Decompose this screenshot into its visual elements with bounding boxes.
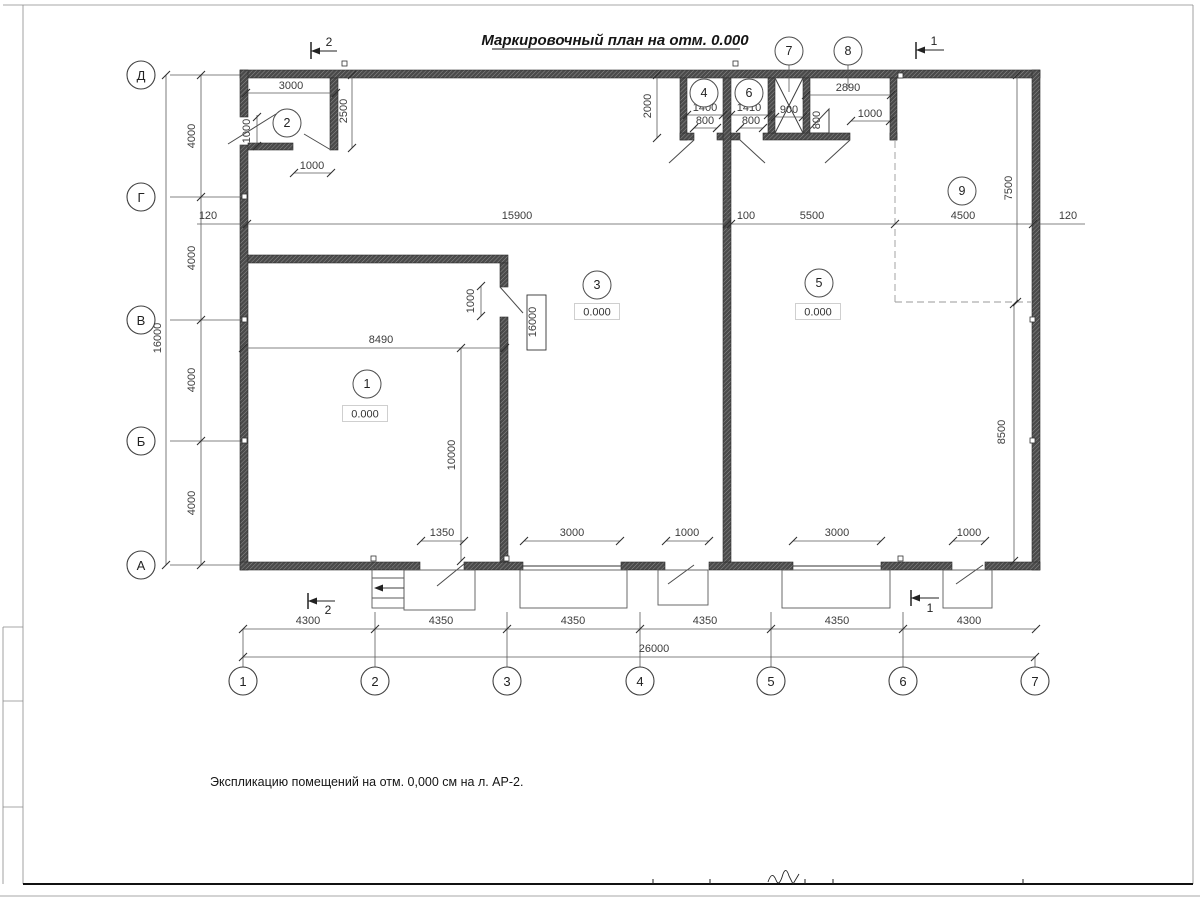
dim-room2-door-left: 1000 xyxy=(241,119,253,143)
dim-room2-door-bottom: 1000 xyxy=(300,160,324,172)
dim-mid-left-offset: 120 xyxy=(199,210,217,222)
axis-1: 1 xyxy=(239,674,246,689)
axis-7: 7 xyxy=(1031,674,1038,689)
axis-A: А xyxy=(137,558,146,573)
room-5-number: 5 xyxy=(816,276,823,290)
dim-mid-gap: 100 xyxy=(737,210,755,222)
room-7-number: 7 xyxy=(786,44,793,58)
section-mark-top-left: 2 xyxy=(311,35,337,59)
dim-toprooms-depth: 2000 xyxy=(642,94,654,118)
room-5-level: 0.000 xyxy=(804,307,832,319)
page-title: Маркировочный план на отм. 0.000 xyxy=(481,32,749,49)
dim-room8-door: 1000 xyxy=(858,108,882,120)
section-top-left-label: 2 xyxy=(326,35,333,49)
dim-right-depth: 8500 xyxy=(996,420,1008,444)
porches xyxy=(404,570,992,610)
axis-6: 6 xyxy=(899,674,906,689)
dim-total-height: 16000 xyxy=(152,323,164,354)
dim-open-3000b: 3000 xyxy=(825,527,849,539)
walls-layer xyxy=(240,70,1040,570)
dim-chain-3: 4350 xyxy=(561,615,585,627)
section-bottom-left-label: 2 xyxy=(325,603,332,617)
dim-mid-span-left: 15900 xyxy=(502,210,533,222)
signature-scribble xyxy=(768,870,799,884)
stair-symbol xyxy=(372,568,404,608)
dim-mid-right-offset: 120 xyxy=(1059,210,1077,222)
axis-G: Г xyxy=(137,190,144,205)
dim-left-chain-3: 4000 xyxy=(186,368,198,392)
room-1-level: 0.000 xyxy=(351,409,379,421)
room-9-number: 9 xyxy=(959,184,966,198)
room-1-number: 1 xyxy=(364,377,371,391)
dimension-ticks xyxy=(162,71,1040,661)
section-top-right-label: 1 xyxy=(931,34,938,48)
room-2-number: 2 xyxy=(284,116,291,130)
panel-mark: 16000 xyxy=(527,295,546,350)
dim-chain-4: 4350 xyxy=(693,615,717,627)
dim-mid-span-mid: 5500 xyxy=(800,210,824,222)
room-3-number: 3 xyxy=(594,278,601,292)
section-mark-top-right: 1 xyxy=(916,34,944,59)
axis-B: Б xyxy=(137,434,146,449)
dim-total-width: 26000 xyxy=(639,643,670,655)
axis-wall-markers xyxy=(242,61,1035,561)
axis-bubbles-left: Д Г В Б А xyxy=(127,61,155,579)
dim-room9-depth: 7500 xyxy=(1003,176,1015,200)
door-swings xyxy=(228,114,983,586)
section-mark-bottom-right: 1 xyxy=(911,590,939,615)
dim-room4-door: 800 xyxy=(696,115,714,127)
dim-open-1000a: 1000 xyxy=(675,527,699,539)
sheet-frame xyxy=(0,5,1200,896)
dim-room2-height: 2500 xyxy=(338,99,350,123)
dim-open-1350: 1350 xyxy=(430,527,454,539)
section-bottom-right-label: 1 xyxy=(927,601,934,615)
dim-left-chain-2: 4000 xyxy=(186,246,198,270)
axis-4: 4 xyxy=(636,674,643,689)
dimension-lines xyxy=(166,65,1085,667)
room-6-number: 6 xyxy=(746,86,753,100)
dim-chain-1: 4300 xyxy=(296,615,320,627)
level-labels: 0.000 0.000 0.000 xyxy=(343,304,841,422)
axis-2: 2 xyxy=(371,674,378,689)
dim-room1-depth: 10000 xyxy=(446,440,458,471)
dim-chain-6: 4300 xyxy=(957,615,981,627)
dim-room2-width: 3000 xyxy=(279,80,303,92)
axis-bubbles-bottom: 1 2 3 4 5 6 7 xyxy=(229,667,1049,695)
axis-3: 3 xyxy=(503,674,510,689)
dim-left-chain-4: 4000 xyxy=(186,491,198,515)
dim-shaft-width: 900 xyxy=(780,104,798,116)
dim-room8-width: 2890 xyxy=(836,82,860,94)
dim-chain-2: 4350 xyxy=(429,615,453,627)
dim-room6-door: 800 xyxy=(742,115,760,127)
dim-open-1000b: 1000 xyxy=(957,527,981,539)
room-3-level: 0.000 xyxy=(583,307,611,319)
floor-plan-svg: Маркировочный план на отм. 0.000 xyxy=(0,0,1200,900)
dim-mid-span-right: 4500 xyxy=(951,210,975,222)
dim-room1-width: 8490 xyxy=(369,334,393,346)
axis-5: 5 xyxy=(767,674,774,689)
dim-ramp-height: 800 xyxy=(811,111,823,129)
room-8-number: 8 xyxy=(845,44,852,58)
dim-chain-5: 4350 xyxy=(825,615,849,627)
dim-left-chain-1: 4000 xyxy=(186,124,198,148)
section-mark-bottom-left: 2 xyxy=(308,593,335,617)
axis-V: В xyxy=(137,313,146,328)
axis-D: Д xyxy=(137,68,146,83)
drawing-title: Маркировочный план на отм. 0.000 xyxy=(481,32,749,49)
dim-room1-door: 1000 xyxy=(465,289,477,313)
dim-open-3000a: 3000 xyxy=(560,527,584,539)
drawing-sheet: Маркировочный план на отм. 0.000 xyxy=(0,0,1200,900)
explication-note: Экспликацию помещений на отм. 0,000 см н… xyxy=(210,775,523,789)
panel-mark-label: 16000 xyxy=(527,307,539,338)
room-4-number: 4 xyxy=(701,86,708,100)
